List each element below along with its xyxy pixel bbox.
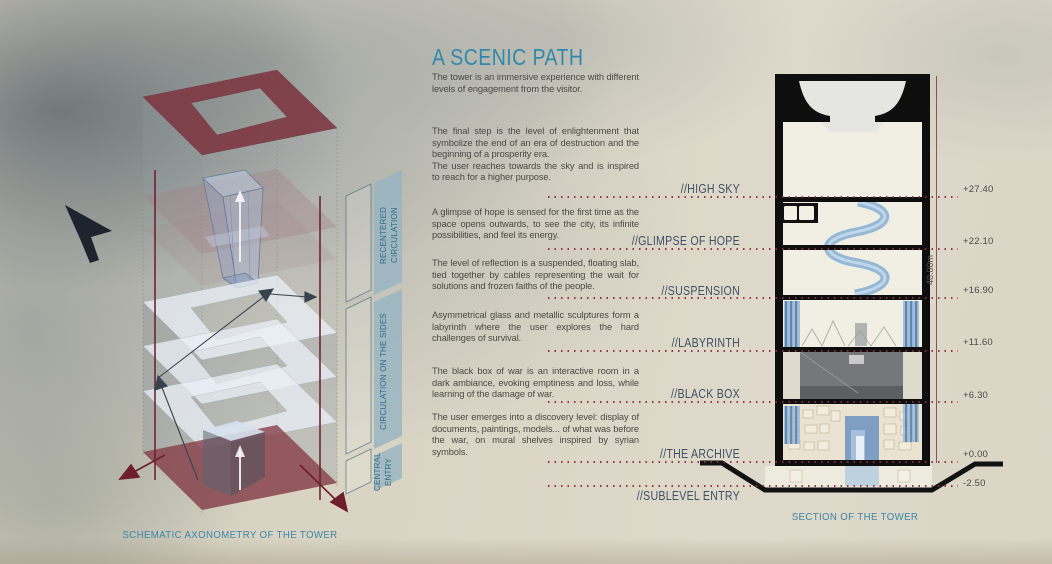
elevation-glimpse-of-hope: +22.10 [963, 236, 994, 247]
axonometry-caption: SCHEMATIC AXONOMETRY OF THE TOWER [120, 529, 341, 541]
level-label-glimpse-of-hope: //GLIMPSE OF HOPE [540, 234, 740, 248]
level-label-suspension: //SUSPENSION [540, 284, 740, 298]
axon-annotation-brackets [346, 184, 371, 494]
axonometry-drawing [40, 40, 420, 530]
level-label-labyrinth: //LABYRINTH [540, 336, 740, 350]
elevation-suspension: +16.90 [963, 285, 994, 296]
presentation-board: RECENTERED CIRCULATION CIRCULATION ON TH… [0, 0, 1052, 564]
elevation-black-box: +6.30 [963, 390, 988, 401]
paragraph-enlightenment: The final step is the level of enlighten… [432, 126, 639, 184]
section-archive-level [783, 404, 922, 460]
intro-text: The tower is an immersive experience wit… [432, 72, 639, 95]
level-label-high-sky: //HIGH SKY [540, 182, 740, 196]
elevation-the-archive: +0.00 [963, 449, 988, 460]
level-dotted-line [548, 248, 958, 250]
section-black-box-level [783, 352, 922, 399]
level-dotted-line [548, 297, 958, 299]
level-dotted-line [548, 461, 958, 463]
section-drawing [690, 60, 1010, 505]
elevation-high-sky: +27.40 [963, 184, 994, 195]
level-dotted-line [548, 196, 958, 198]
section-caption: SECTION OF THE TOWER [763, 511, 947, 523]
level-dotted-line [548, 401, 958, 403]
level-label-sublevel-entry: //SUBLEVEL ENTRY [540, 489, 740, 503]
page-title: A SCENIC PATH [432, 44, 583, 71]
dimension-line [936, 76, 937, 463]
annotation-circulation-on-the-sides: CIRCULATION ON THE SIDES [378, 301, 400, 443]
section-small-rooms [781, 203, 818, 223]
level-label-black-box: //BLACK BOX [540, 387, 740, 401]
level-dotted-line [548, 485, 958, 487]
annotation-recentered-circulation: RECENTERED CIRCULATION [378, 180, 400, 290]
total-height-label: 40.00m [925, 255, 935, 285]
elevation-sublevel-entry: -2.50 [963, 478, 986, 489]
level-label-the-archive: //THE ARCHIVE [540, 447, 740, 461]
annotation-central-entry: CENTRAL ENTRY [372, 449, 399, 495]
paper-edge-shade [0, 538, 1052, 564]
level-dotted-line [548, 350, 958, 352]
cursor-arrow-graphic [65, 205, 112, 263]
elevation-labyrinth: +11.60 [963, 337, 993, 348]
